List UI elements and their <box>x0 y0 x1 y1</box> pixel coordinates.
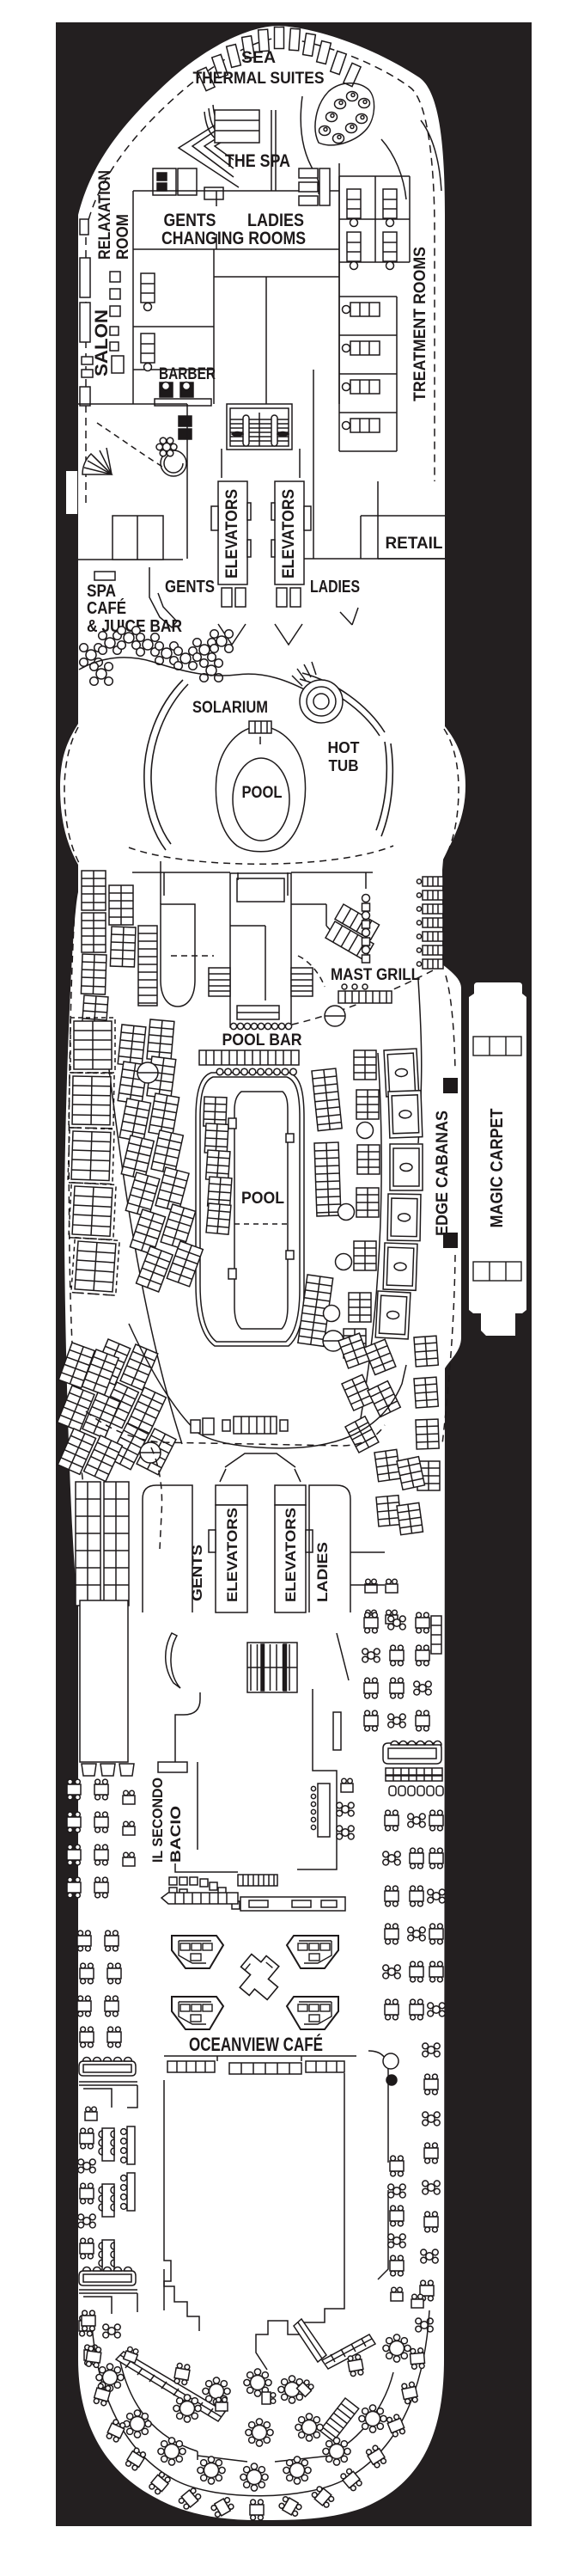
svg-text:TUB: TUB <box>329 757 359 774</box>
svg-text:SEA: SEA <box>241 49 276 67</box>
svg-text:ROOM: ROOM <box>114 214 132 260</box>
svg-text:SALON: SALON <box>92 309 112 376</box>
svg-text:THE SPA: THE SPA <box>225 151 290 171</box>
svg-text:HOT: HOT <box>328 739 360 756</box>
svg-text:SOLARIUM: SOLARIUM <box>192 699 268 717</box>
svg-text:GENTS: GENTS <box>189 1545 205 1601</box>
svg-text:POOL: POOL <box>241 1190 284 1208</box>
svg-text:ELEVATORS: ELEVATORS <box>223 489 241 578</box>
svg-text:MAST GRILL: MAST GRILL <box>331 966 420 984</box>
svg-text:TREATMENT ROOMS: TREATMENT ROOMS <box>411 247 429 401</box>
svg-text:EDGE CABANAS: EDGE CABANAS <box>434 1111 452 1236</box>
svg-text:GENTS: GENTS <box>165 578 215 597</box>
svg-text:RELAXATION: RELAXATION <box>96 170 114 260</box>
svg-text:THERMAL SUITES: THERMAL SUITES <box>193 70 325 88</box>
svg-text:POOL BAR: POOL BAR <box>222 1031 302 1049</box>
svg-text:RETAIL: RETAIL <box>386 535 443 553</box>
svg-text:LADIES: LADIES <box>310 578 360 597</box>
svg-text:MAGIC CARPET: MAGIC CARPET <box>488 1109 507 1228</box>
svg-text:IL SECONDO: IL SECONDO <box>149 1778 166 1863</box>
svg-text:ELEVATORS: ELEVATORS <box>283 1508 299 1602</box>
svg-text:LADIES: LADIES <box>247 211 304 230</box>
svg-text:CHANGING ROOMS: CHANGING ROOMS <box>161 229 306 248</box>
svg-text:OCEANVIEW CAFÉ: OCEANVIEW CAFÉ <box>189 2034 323 2055</box>
svg-text:SPA: SPA <box>87 582 116 601</box>
svg-text:ELEVATORS: ELEVATORS <box>224 1508 240 1602</box>
svg-text:CAFÉ: CAFÉ <box>87 598 126 618</box>
svg-text:ELEVATORS: ELEVATORS <box>280 489 298 578</box>
svg-text:BACIO: BACIO <box>167 1806 184 1863</box>
svg-text:GENTS: GENTS <box>164 211 216 230</box>
svg-text:POOL: POOL <box>242 784 283 802</box>
svg-text:LADIES: LADIES <box>314 1542 331 1602</box>
svg-text:BARBER: BARBER <box>159 365 216 383</box>
